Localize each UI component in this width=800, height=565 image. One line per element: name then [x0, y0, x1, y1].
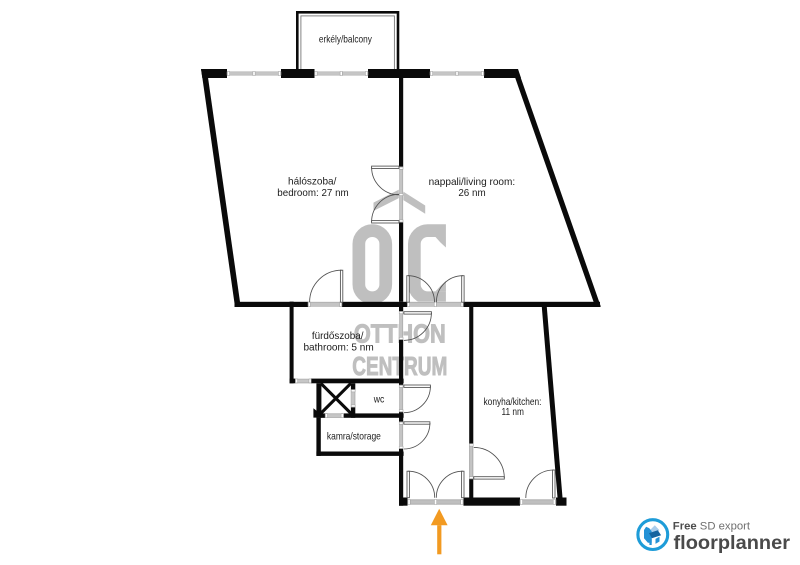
svg-text:fürdőszoba/: fürdőszoba/	[312, 330, 364, 342]
svg-text:floorplanner: floorplanner	[674, 532, 791, 554]
svg-text:26 nm: 26 nm	[458, 187, 486, 199]
svg-text:kamra/storage: kamra/storage	[327, 430, 381, 442]
svg-text:11 nm: 11 nm	[501, 406, 524, 418]
svg-text:Free SD export: Free SD export	[673, 521, 751, 533]
svg-text:wc: wc	[373, 394, 384, 406]
svg-text:erkély/balcony: erkély/balcony	[319, 34, 373, 46]
svg-text:bathroom: 5 nm: bathroom: 5 nm	[303, 341, 374, 353]
svg-text:bedroom: 27 nm: bedroom: 27 nm	[277, 187, 349, 199]
svg-text:hálószoba/: hálószoba/	[288, 176, 336, 188]
